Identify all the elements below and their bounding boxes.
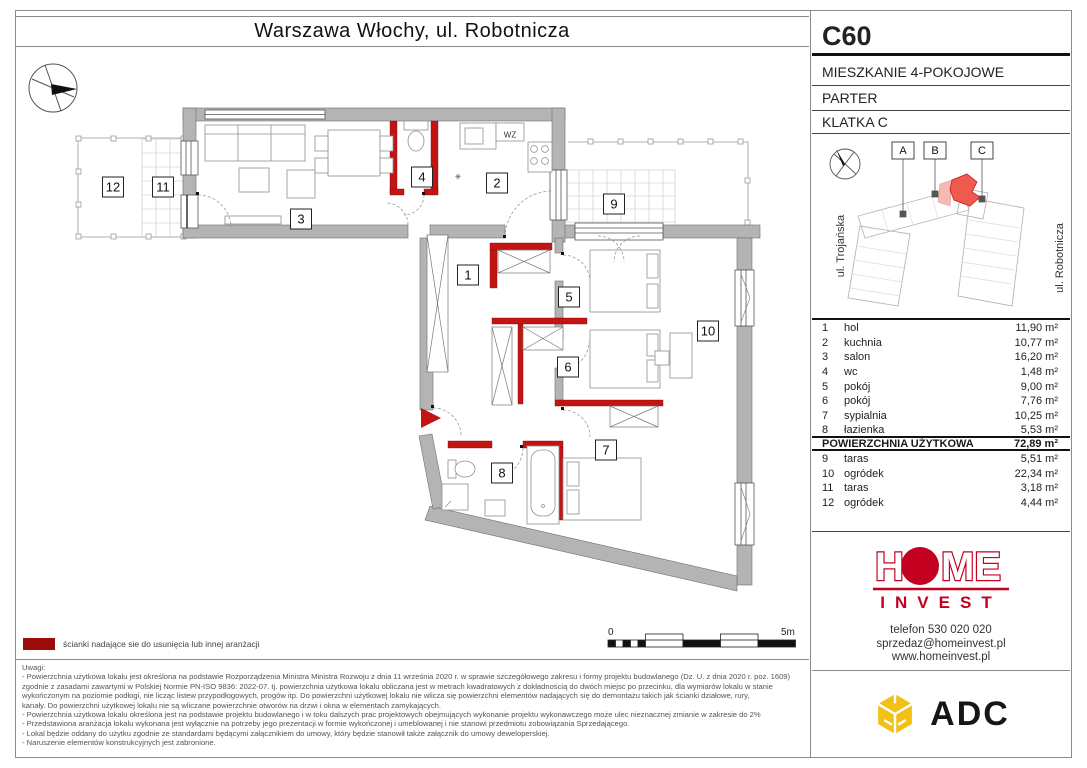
- room-area: 3,18 m²: [1021, 482, 1058, 494]
- room-name: ogródek: [844, 468, 1015, 480]
- developer-phone: telefon 530 020 020: [812, 624, 1070, 638]
- room-name: łazienka: [844, 424, 1021, 436]
- plan-annotation: ✳: [455, 173, 462, 182]
- room-label: 3: [290, 209, 312, 230]
- room-number: 8: [822, 424, 844, 436]
- table-row: 2kuchnia10,77 m²: [812, 336, 1070, 351]
- room-number: 12: [822, 497, 844, 509]
- table-row: 12ogródek4,44 m²: [812, 496, 1070, 511]
- table-row: 9taras5,51 m²: [812, 452, 1070, 467]
- logo-o-circle: [901, 547, 939, 585]
- room-label: 12: [102, 177, 124, 198]
- staircase-labels: A B C: [892, 142, 993, 159]
- logo-letters-me: ME: [941, 545, 1001, 589]
- disclaimer-heading: Uwagi:: [22, 663, 809, 672]
- disclaimer-line: kanały. Do powierzchni użytkowej lokalu …: [22, 701, 809, 710]
- room-number: 11: [822, 482, 844, 494]
- room-name: hol: [844, 322, 1015, 334]
- highlighted-unit: [950, 174, 980, 206]
- flyer-page: Warszawa Włochy, ul. Robotnicza: [0, 0, 1087, 768]
- total-area-value: 72,89 m²: [1014, 438, 1058, 450]
- rooms-table-outdoor: 9taras5,51 m²10ogródek22,34 m²11taras3,1…: [812, 452, 1070, 510]
- room-name: taras: [844, 482, 1021, 494]
- plan-annotation: WZ: [504, 131, 516, 140]
- street-label-left: ul. Trojańska: [835, 201, 847, 291]
- legend-swatch: [23, 638, 55, 650]
- title-box: Warszawa Włochy, ul. Robotnicza: [15, 16, 809, 47]
- room-name: taras: [844, 453, 1021, 465]
- scale-start: 0: [608, 627, 614, 638]
- room-area: 10,77 m²: [1015, 337, 1058, 349]
- entrance-arrow: [421, 408, 441, 428]
- disclaimer: Uwagi: - Powierzchnia użytkowa lokalu je…: [15, 659, 809, 748]
- room-name: kuchnia: [844, 337, 1015, 349]
- room-area: 22,34 m²: [1015, 468, 1058, 480]
- diagram-compass-icon: [830, 149, 860, 179]
- room-area: 4,44 m²: [1021, 497, 1058, 509]
- table-row: 3salon16,20 m²: [812, 350, 1070, 365]
- unit-staircase: KLATKA C: [812, 111, 1070, 132]
- disclaimer-line: wykończonym na poziomie podłogi, nie lic…: [22, 691, 809, 700]
- unit-type: MIESZKANIE 4-POKOJOWE: [812, 60, 1070, 84]
- rooms-table-main: 1hol11,90 m²2kuchnia10,77 m²3salon16,20 …: [812, 321, 1070, 438]
- divider: [812, 133, 1070, 134]
- room-number: 5: [822, 381, 844, 393]
- room-label: 7: [595, 440, 617, 461]
- room-label: 2: [486, 173, 508, 194]
- agency-cube-icon: [872, 688, 918, 740]
- compass-icon: [29, 64, 77, 112]
- unit-floor: PARTER: [812, 86, 1070, 109]
- room-number: 4: [822, 366, 844, 378]
- table-row: 11taras3,18 m²: [812, 481, 1070, 496]
- room-label: 6: [557, 357, 579, 378]
- divider: [812, 318, 1070, 320]
- disclaimer-lines: - Powierzchnia użytkowa lokalu jest okre…: [22, 672, 809, 747]
- disclaimer-line: zgodnie z zasadami zawartymi w Polskiej …: [22, 682, 809, 691]
- building-outline: [848, 188, 1024, 306]
- total-area-row: POWIERZCHNIA UŻYTKOWA 72,89 m²: [812, 436, 1070, 451]
- room-name: pokój: [844, 395, 1021, 407]
- room-label: 11: [152, 177, 174, 198]
- room-label: 1: [457, 265, 479, 286]
- disclaimer-line: - Powierzchnia użytkowa lokalu określona…: [22, 710, 809, 719]
- staircase-label-c: C: [978, 145, 986, 157]
- room-name: sypialnia: [844, 410, 1015, 422]
- room-number: 3: [822, 351, 844, 363]
- disclaimer-line: - Powierzchnia użytkowa lokalu jest okre…: [22, 672, 809, 681]
- divider: [812, 531, 1070, 532]
- room-area: 7,76 m²: [1021, 395, 1058, 407]
- developer-email[interactable]: sprzedaz@homeinvest.pl: [876, 638, 1005, 650]
- room-area: 16,20 m²: [1015, 351, 1058, 363]
- room-name: wc: [844, 366, 1021, 378]
- agency-block: ADC: [812, 672, 1070, 756]
- room-number: 10: [822, 468, 844, 480]
- room-name: ogródek: [844, 497, 1021, 509]
- unit-code: C60: [812, 20, 1070, 52]
- room-number: 9: [822, 453, 844, 465]
- room-number: 7: [822, 410, 844, 422]
- street-label-right: ul. Robotnicza: [1054, 210, 1066, 306]
- scale-bar: 0 5m: [598, 622, 808, 656]
- location-diagram: A B C: [812, 136, 1070, 318]
- disclaimer-line: - Naruszenie elementów konstrukcyjnych j…: [22, 738, 809, 747]
- table-row: 5pokój9,00 m²: [812, 379, 1070, 394]
- table-row: 7sypialnia10,25 m²: [812, 409, 1070, 424]
- room-label: 5: [558, 287, 580, 308]
- legend-text: ścianki nadające sie do usunięcia lub in…: [63, 639, 260, 649]
- developer-website[interactable]: www.homeinvest.pl: [892, 651, 990, 663]
- room-number: 6: [822, 395, 844, 407]
- staircase-label-a: A: [899, 145, 907, 157]
- developer-contact: telefon 530 020 020 sprzedaz@homeinvest.…: [812, 624, 1070, 665]
- logo-letter-h: H: [875, 545, 904, 589]
- room-area: 1,48 m²: [1021, 366, 1058, 378]
- room-area: 9,00 m²: [1021, 381, 1058, 393]
- total-area-label: POWIERZCHNIA UŻYTKOWA: [822, 438, 1014, 450]
- highlighted-unit-extension: [938, 180, 952, 206]
- room-label: 8: [491, 463, 513, 484]
- room-area: 5,51 m²: [1021, 453, 1058, 465]
- table-row: 6pokój7,76 m²: [812, 394, 1070, 409]
- room-label: 4: [411, 167, 433, 188]
- room-label: 10: [697, 321, 719, 342]
- developer-logo: H ME INVEST: [853, 542, 1029, 616]
- divider: [812, 53, 1070, 56]
- staircase-label-b: B: [931, 145, 938, 157]
- disclaimer-line: - Lokal będzie oddany do użytku zgodnie …: [22, 729, 809, 738]
- room-name: salon: [844, 351, 1015, 363]
- divider: [812, 670, 1070, 671]
- room-area: 10,25 m²: [1015, 410, 1058, 422]
- table-row: 4wc1,48 m²: [812, 365, 1070, 380]
- floor-plan-drawing: [15, 58, 810, 633]
- table-row: 1hol11,90 m²: [812, 321, 1070, 336]
- room-area: 5,53 m²: [1021, 424, 1058, 436]
- panel-divider: [810, 10, 811, 757]
- scale-end: 5m: [781, 627, 795, 638]
- logo-sub-invest: INVEST: [880, 593, 1001, 612]
- disclaimer-line: - Przedstawiona aranżacja lokalu wykonan…: [22, 719, 809, 728]
- table-row: 10ogródek22,34 m²: [812, 467, 1070, 482]
- page-title: Warszawa Włochy, ul. Robotnicza: [254, 20, 570, 43]
- agency-name: ADC: [930, 695, 1010, 734]
- room-area: 11,90 m²: [1015, 322, 1058, 334]
- room-name: pokój: [844, 381, 1021, 393]
- room-number: 2: [822, 337, 844, 349]
- room-number: 1: [822, 322, 844, 334]
- room-label: 9: [603, 194, 625, 215]
